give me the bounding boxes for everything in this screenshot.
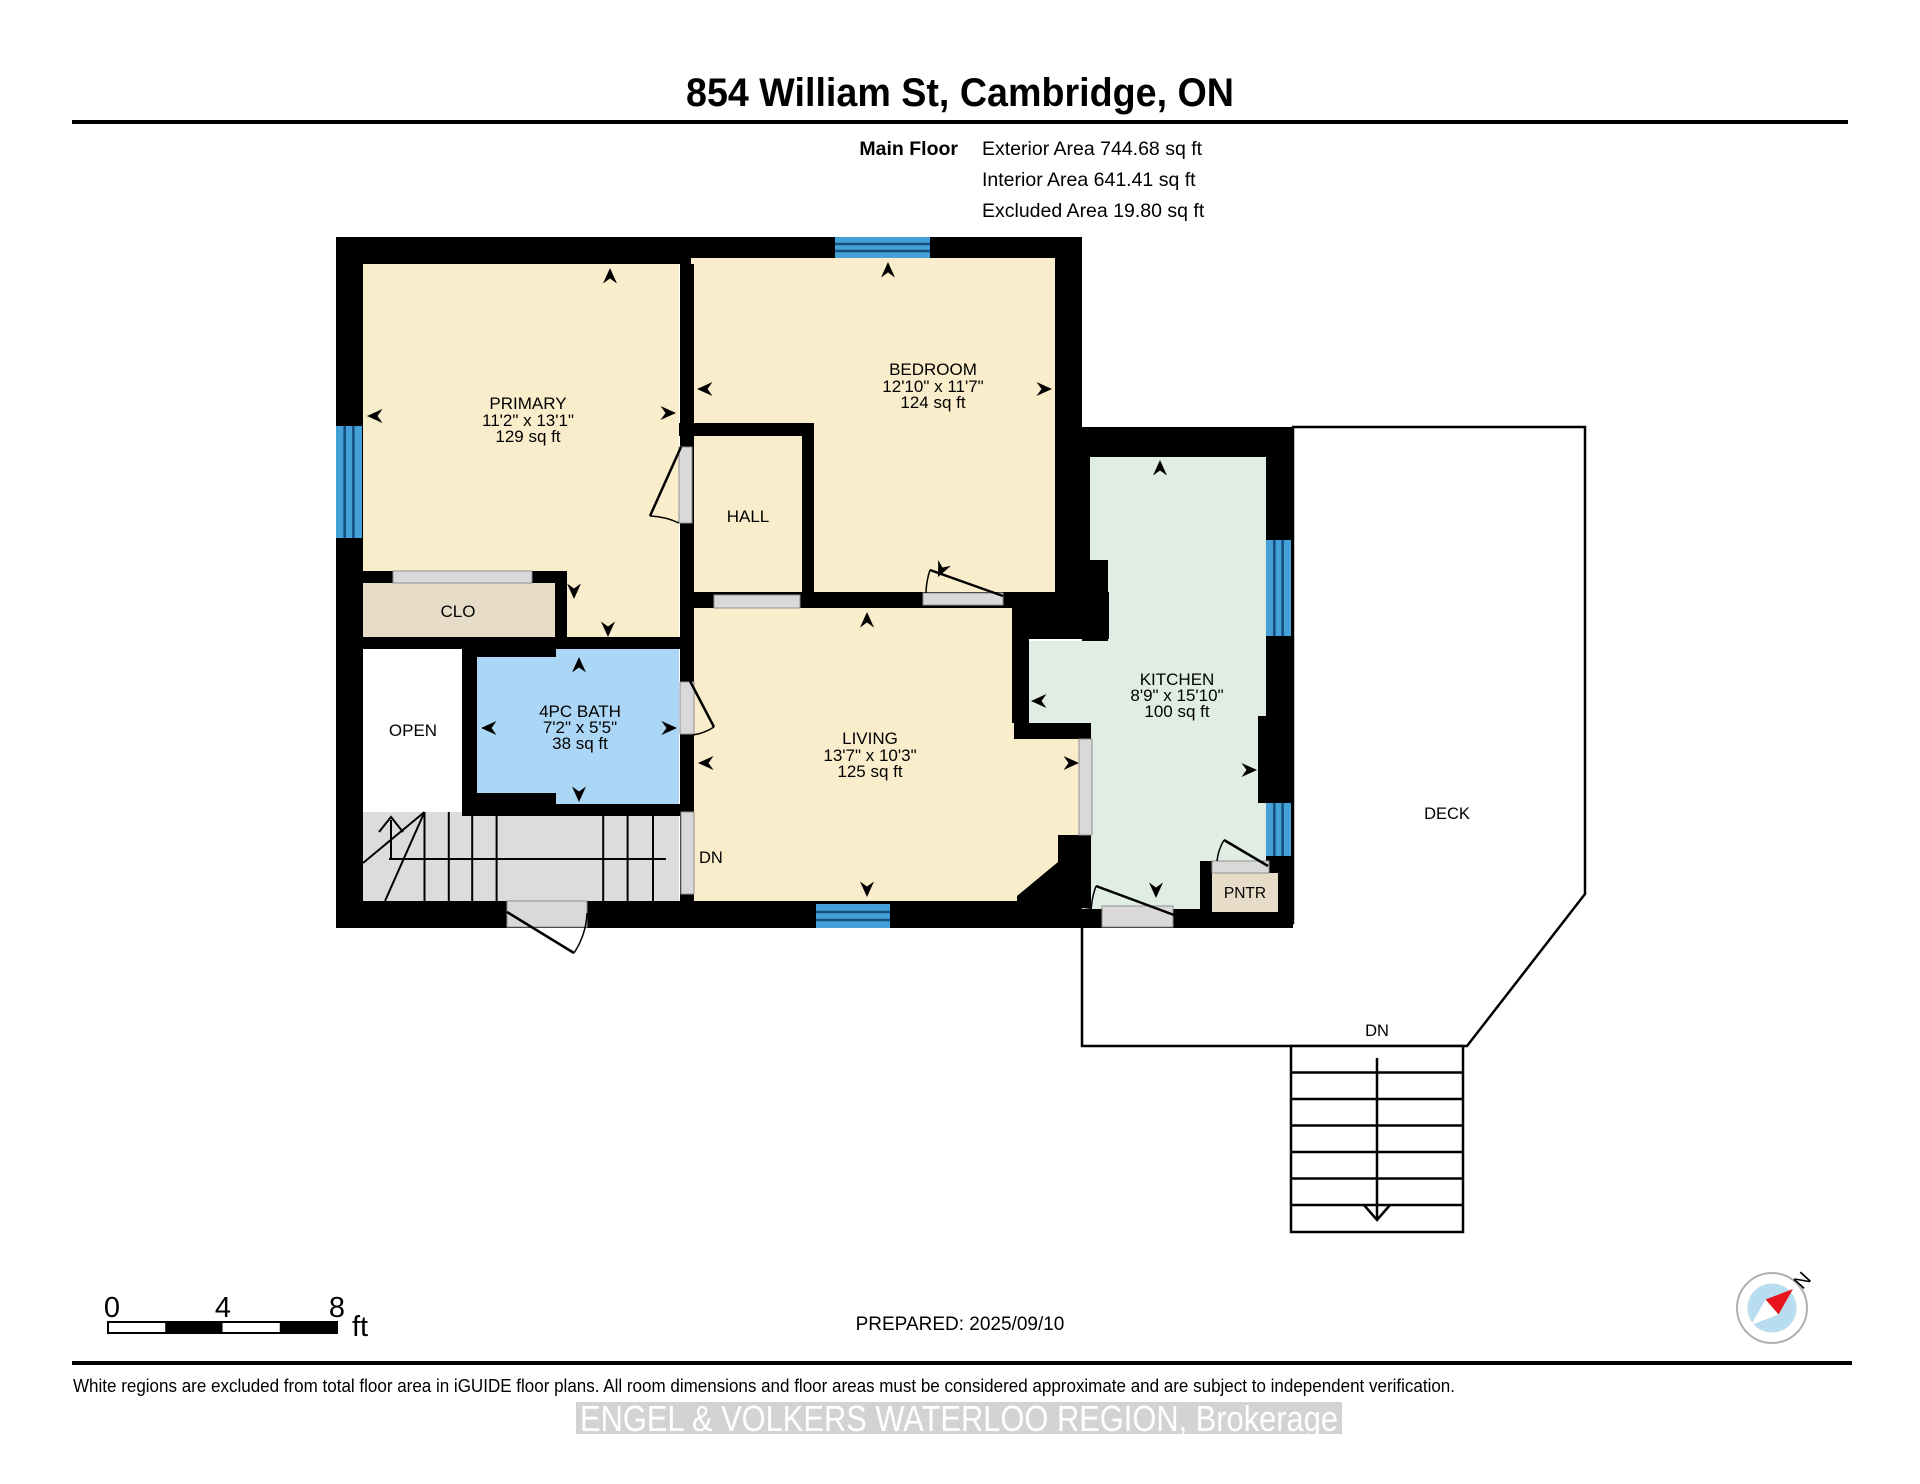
svg-text:CLO: CLO <box>441 602 476 621</box>
svg-text:Excluded Area 19.80 sq ft: Excluded Area 19.80 sq ft <box>982 200 1205 222</box>
svg-text:125 sq ft: 125 sq ft <box>837 762 902 781</box>
svg-text:38 sq ft: 38 sq ft <box>552 734 608 753</box>
svg-text:OPEN: OPEN <box>389 721 437 740</box>
svg-text:4: 4 <box>215 1292 231 1324</box>
svg-text:Main Floor: Main Floor <box>859 138 958 160</box>
svg-text:Exterior Area 744.68 sq ft: Exterior Area 744.68 sq ft <box>982 138 1203 160</box>
svg-text:854 William St, Cambridge, ON: 854 William St, Cambridge, ON <box>686 71 1234 115</box>
svg-text:0: 0 <box>104 1292 120 1324</box>
svg-text:129 sq ft: 129 sq ft <box>495 427 560 446</box>
svg-text:PNTR: PNTR <box>1224 885 1266 902</box>
svg-text:DECK: DECK <box>1424 805 1470 823</box>
svg-text:DN: DN <box>1365 1022 1389 1040</box>
svg-text:White regions are excluded fro: White regions are excluded from total fl… <box>73 1375 1455 1396</box>
svg-text:PREPARED: 2025/09/10: PREPARED: 2025/09/10 <box>856 1314 1065 1335</box>
svg-text:ENGEL & VOLKERS WATERLOO REGIO: ENGEL & VOLKERS WATERLOO REGION, Brokera… <box>580 1398 1338 1439</box>
svg-text:8: 8 <box>329 1292 345 1324</box>
svg-text:100 sq ft: 100 sq ft <box>1144 702 1209 721</box>
svg-text:DN: DN <box>699 849 723 867</box>
svg-text:HALL: HALL <box>727 507 770 526</box>
svg-text:124 sq ft: 124 sq ft <box>900 393 965 412</box>
svg-text:ft: ft <box>352 1311 368 1343</box>
svg-text:Interior Area 641.41 sq ft: Interior Area 641.41 sq ft <box>982 169 1196 191</box>
